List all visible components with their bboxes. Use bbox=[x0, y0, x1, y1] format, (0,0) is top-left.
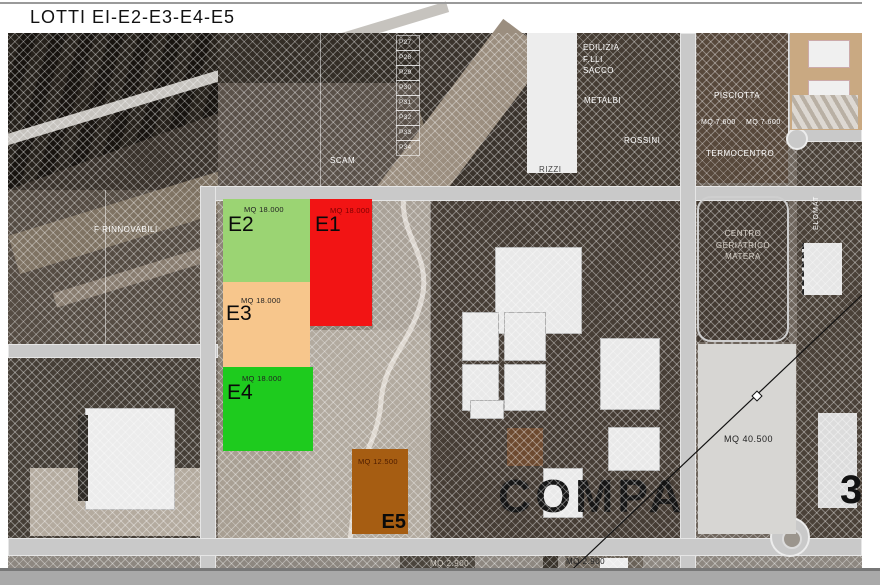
centro-parcel-outline bbox=[697, 196, 789, 342]
label-centro-geriatrico: CENTRO GERIATRICO MATERA bbox=[697, 228, 789, 263]
page-left-margin bbox=[0, 33, 8, 585]
label-mq-7600-a: MQ 7.600 bbox=[701, 118, 736, 128]
plan-page: LOTTI EI-E2-E3-E4-E5 COMPA bbox=[0, 0, 880, 585]
label-f-rinnovabili: F RINNOVABILI bbox=[94, 224, 158, 236]
page-right-margin bbox=[862, 0, 880, 585]
lot-e5-area-label: MQ 12.500 bbox=[358, 457, 398, 466]
road-vertical-left bbox=[200, 186, 216, 570]
lot-e3: MQ 18.000 E3 bbox=[223, 282, 310, 367]
roundabout-small bbox=[786, 128, 808, 150]
small-lot-row: P32 bbox=[396, 110, 420, 126]
lot-e4: MQ 18.000 E4 bbox=[223, 367, 313, 451]
photo-text-3: 3 bbox=[840, 468, 862, 513]
label-scam: SCAM bbox=[330, 155, 355, 167]
lot-e3-name: E3 bbox=[226, 302, 252, 326]
page-bottom-bar bbox=[0, 568, 880, 585]
lot-e4-name: E4 bbox=[227, 381, 253, 405]
small-lot-row: P33 bbox=[396, 125, 420, 141]
road-vertical-right bbox=[680, 33, 696, 570]
small-lot-row: P29 bbox=[396, 65, 420, 81]
small-lot-row: P27 bbox=[396, 35, 420, 51]
lot-e1: MQ 18.000 E1 bbox=[310, 199, 372, 326]
small-lots-column: P27P28P29P30P31P32P33P34 bbox=[396, 36, 420, 156]
lot-e2: MQ 18.000 E2 bbox=[223, 199, 310, 282]
label-elomat-street: ELOMAT bbox=[812, 160, 822, 230]
label-pisciotta: PISCIOTTA bbox=[714, 90, 760, 102]
lot-e2-name: E2 bbox=[228, 213, 254, 237]
label-mq-7600-b: MQ 7.600 bbox=[746, 118, 781, 128]
rizzi-lot bbox=[527, 33, 577, 173]
lot-e1-name: E1 bbox=[315, 213, 341, 237]
road-left-horizontal bbox=[8, 344, 218, 358]
lot-e5: MQ 12.500 E5 bbox=[352, 449, 408, 534]
tan-area-topright bbox=[790, 33, 862, 130]
small-lot-row: P28 bbox=[396, 50, 420, 66]
building bbox=[808, 40, 850, 68]
label-edilizia-flli-sacco: EDILIZIA F.LLI SACCO bbox=[583, 42, 619, 77]
small-lot-row: P34 bbox=[396, 140, 420, 156]
rubble-ground bbox=[792, 95, 858, 129]
road-bottom-horizontal bbox=[8, 538, 862, 556]
label-metalbi: METALBI bbox=[584, 95, 621, 107]
page-title: LOTTI EI-E2-E3-E4-E5 bbox=[30, 7, 235, 28]
label-termocentro: TERMOCENTRO bbox=[706, 148, 774, 160]
small-lot-row: P31 bbox=[396, 95, 420, 111]
label-rizzi: RIZZI bbox=[539, 164, 562, 176]
page-top-border bbox=[0, 2, 880, 4]
label-mq-2900-b: MQ 2.900 bbox=[566, 556, 605, 568]
lot-e5-name: E5 bbox=[382, 511, 406, 534]
label-rossini: ROSSINI bbox=[624, 135, 660, 147]
label-mq-40500: MQ 40.500 bbox=[724, 433, 773, 446]
small-lot-row: P30 bbox=[396, 80, 420, 96]
